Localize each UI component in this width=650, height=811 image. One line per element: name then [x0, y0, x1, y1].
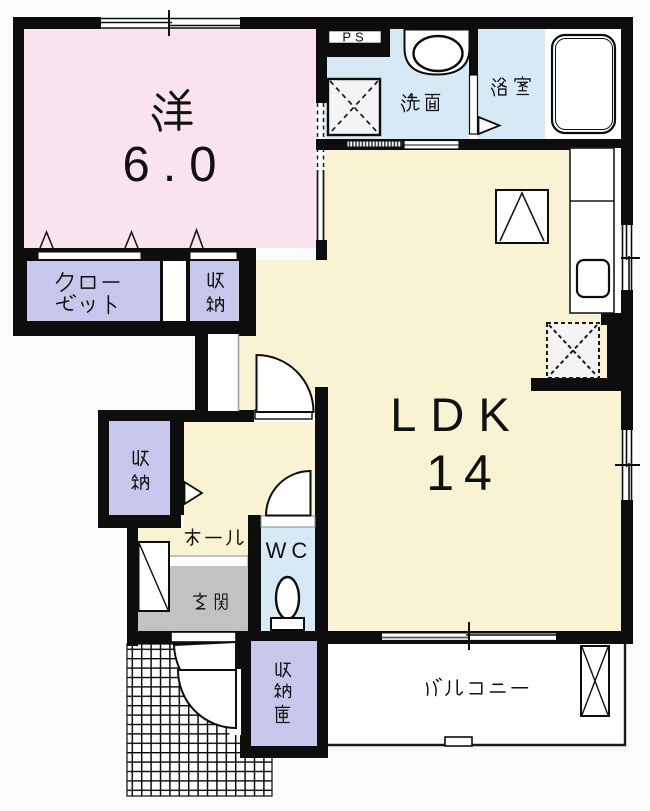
- svg-text:LDK: LDK: [390, 388, 523, 441]
- svg-text:14: 14: [426, 445, 502, 501]
- svg-text:6.0: 6.0: [122, 138, 229, 192]
- svg-text:PS: PS: [342, 30, 367, 45]
- svg-text:WC: WC: [266, 538, 313, 563]
